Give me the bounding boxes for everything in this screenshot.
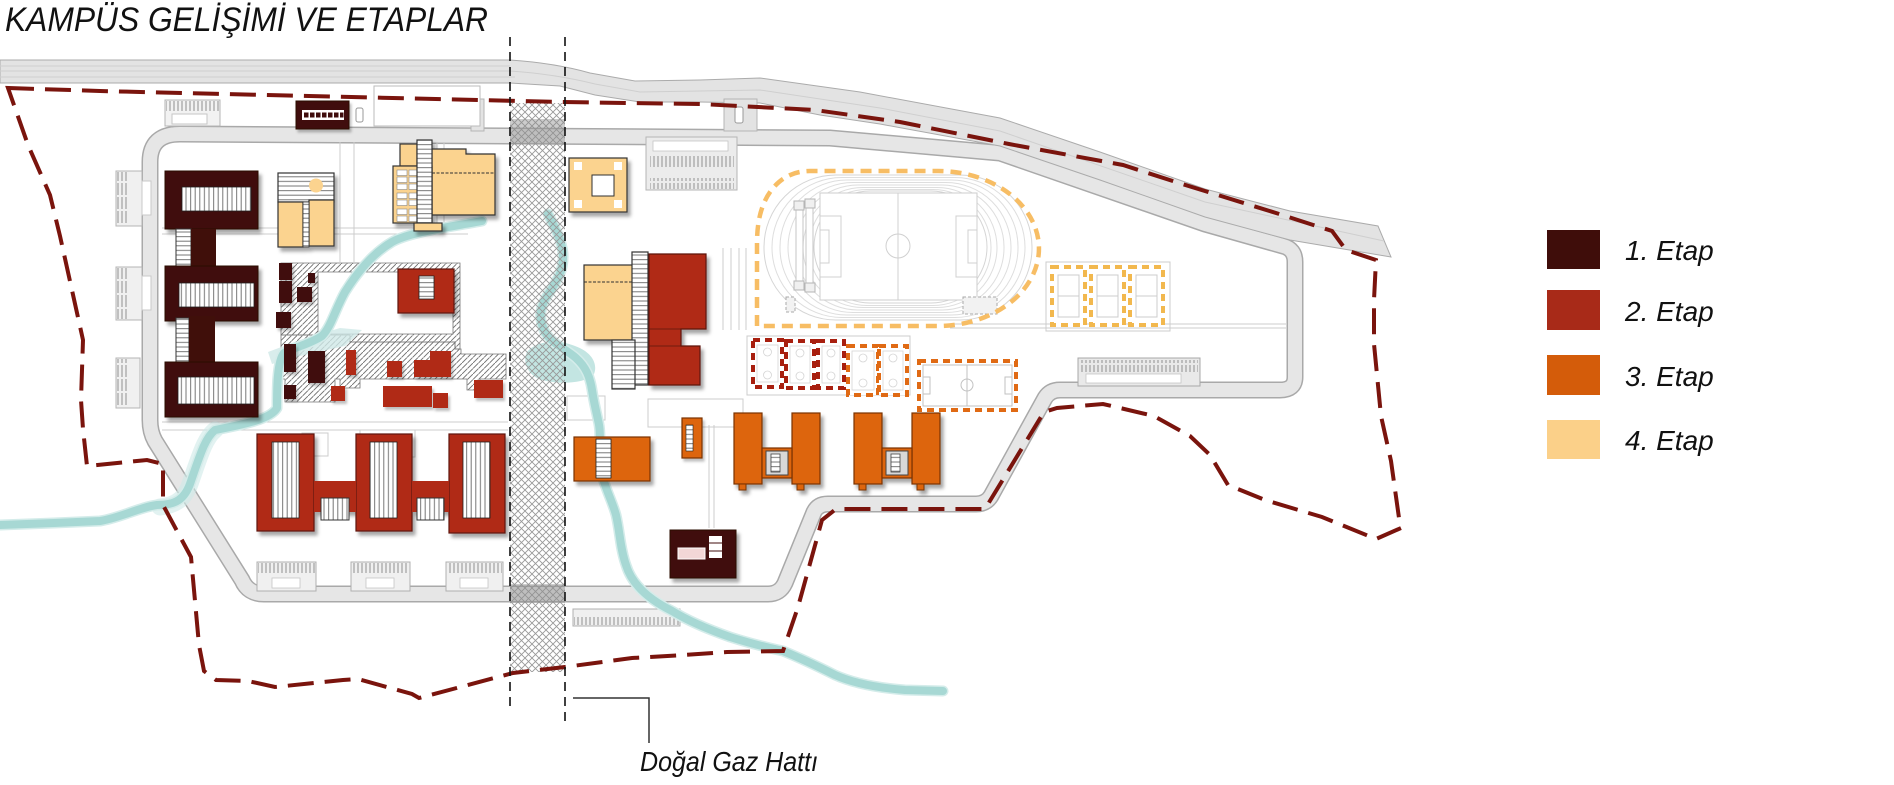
svg-text:KAMPÜS GELİŞİMİ VE ETAPLAR: KAMPÜS GELİŞİMİ VE ETAPLAR	[5, 1, 488, 39]
svg-text:2. Etap: 2. Etap	[1624, 296, 1714, 327]
svg-text:1. Etap: 1. Etap	[1625, 235, 1714, 266]
svg-text:3. Etap: 3. Etap	[1625, 361, 1714, 392]
svg-text:Doğal Gaz Hattı: Doğal Gaz Hattı	[640, 746, 818, 777]
svg-text:4. Etap: 4. Etap	[1625, 425, 1714, 456]
